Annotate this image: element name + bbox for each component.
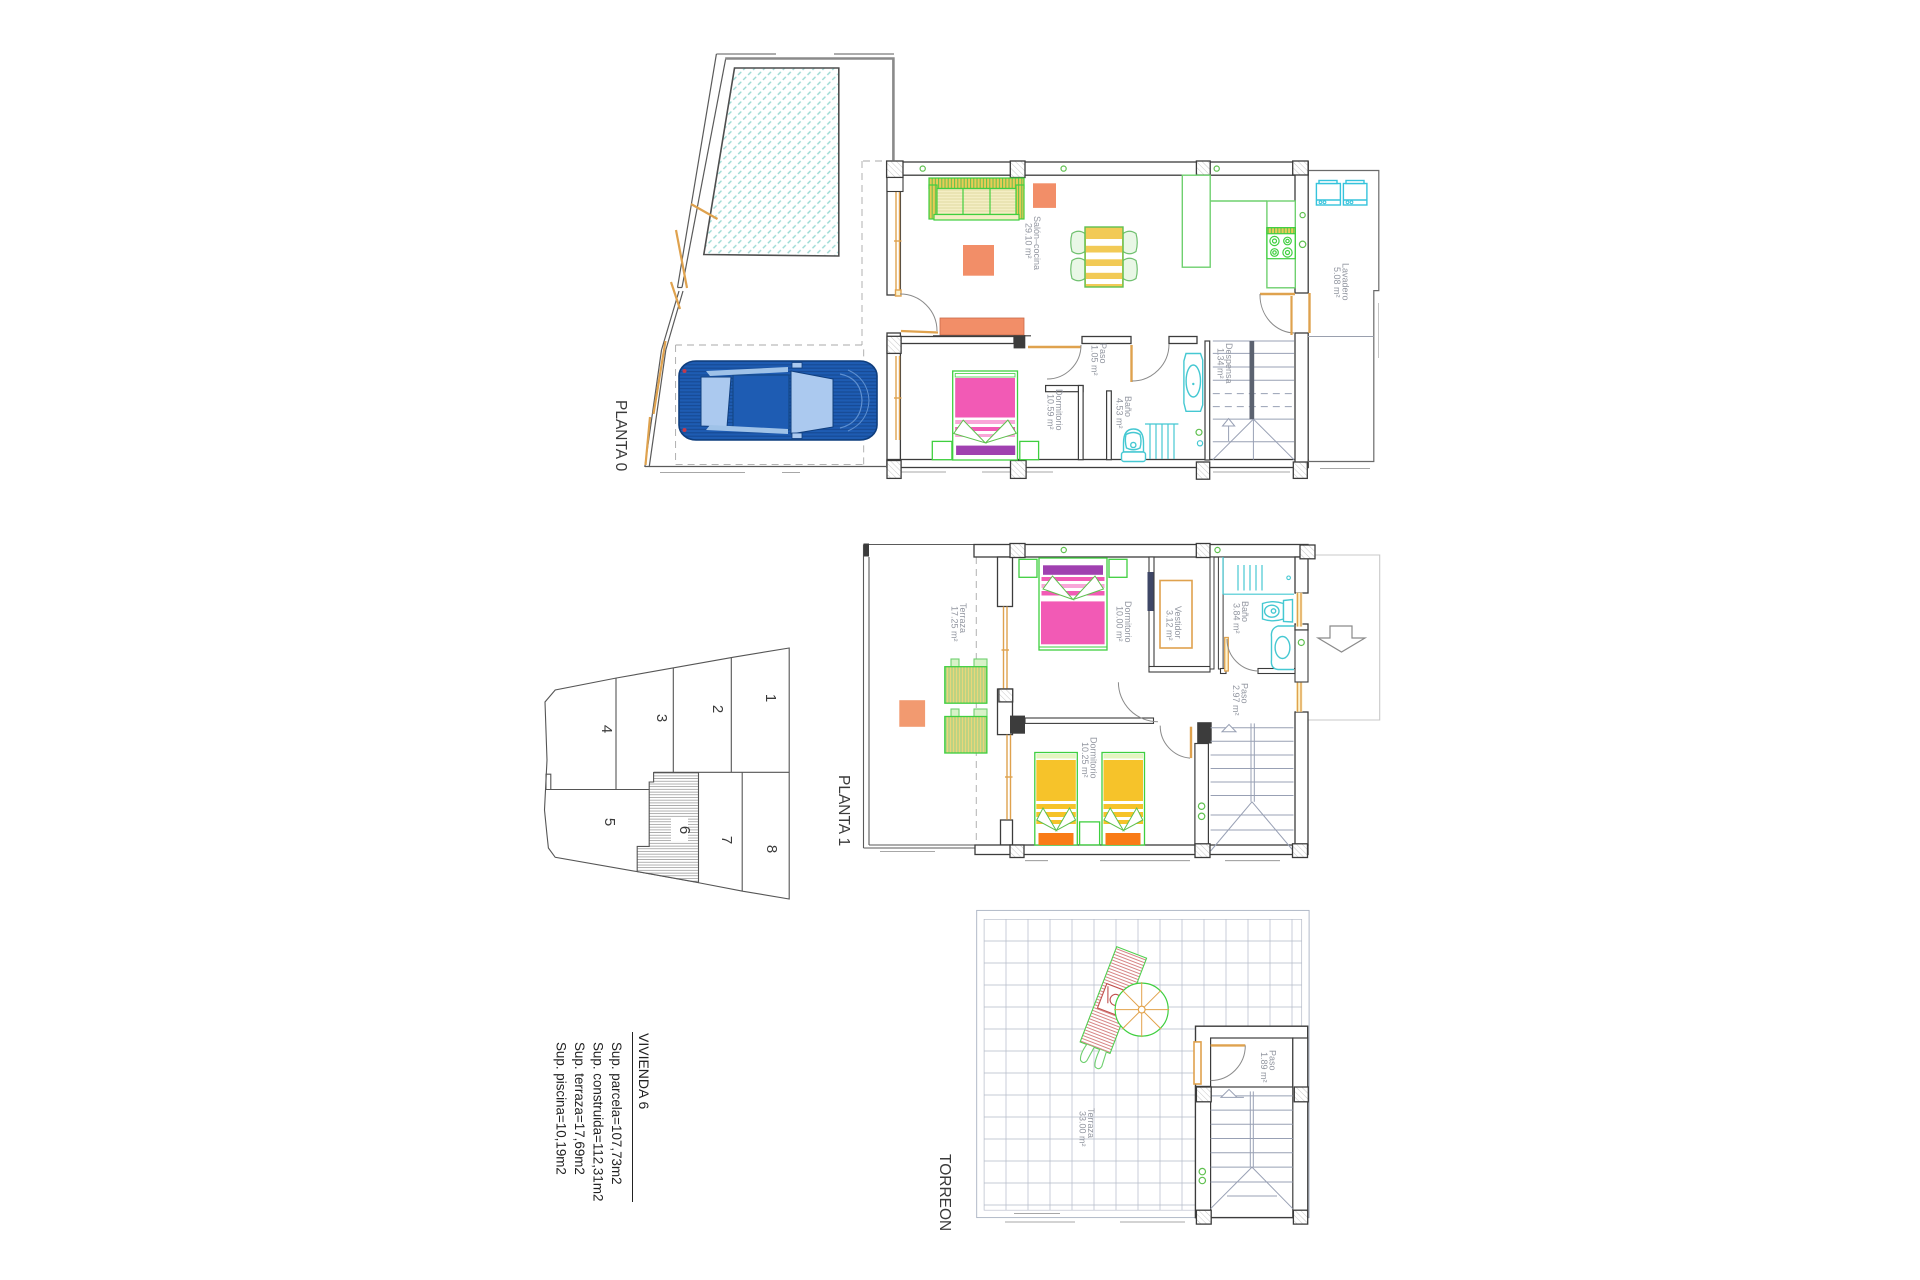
svg-text:Vestidor3.12 m²: Vestidor3.12 m² bbox=[1165, 606, 1184, 641]
svg-text:Dormitorio10.25 m²: Dormitorio10.25 m² bbox=[1080, 737, 1099, 779]
svg-text:VIVIENDA 6: VIVIENDA 6 bbox=[636, 1033, 652, 1109]
svg-text:PLANTA 0: PLANTA 0 bbox=[612, 400, 629, 472]
svg-text:7: 7 bbox=[718, 836, 735, 844]
svg-text:Despensa1.34 m²: Despensa1.34 m² bbox=[1216, 343, 1235, 384]
svg-text:TORREON: TORREON bbox=[936, 1154, 953, 1231]
svg-text:5: 5 bbox=[601, 818, 618, 826]
svg-text:Sup. terraza=17,69m2: Sup. terraza=17,69m2 bbox=[572, 1042, 587, 1175]
svg-text:PLANTA 1: PLANTA 1 bbox=[835, 775, 852, 846]
svg-text:Dormitorio10.59 m²: Dormitorio10.59 m² bbox=[1046, 389, 1065, 431]
svg-text:8: 8 bbox=[763, 845, 780, 853]
svg-text:Sup. construida=112,31m2: Sup. construida=112,31m2 bbox=[591, 1042, 606, 1201]
svg-text:Dormitorio10.00 m²: Dormitorio10.00 m² bbox=[1115, 601, 1134, 643]
svg-text:3: 3 bbox=[653, 714, 670, 722]
svg-text:Lavadero5.08 m²: Lavadero5.08 m² bbox=[1332, 263, 1351, 301]
svg-text:1: 1 bbox=[762, 694, 779, 702]
svg-text:Sup. parcela=107,73m2: Sup. parcela=107,73m2 bbox=[609, 1042, 624, 1185]
svg-text:2: 2 bbox=[709, 705, 726, 713]
svg-text:6: 6 bbox=[676, 826, 693, 834]
svg-text:Sup. piscina=10,19m2: Sup. piscina=10,19m2 bbox=[554, 1042, 569, 1175]
svg-text:4: 4 bbox=[598, 725, 615, 733]
